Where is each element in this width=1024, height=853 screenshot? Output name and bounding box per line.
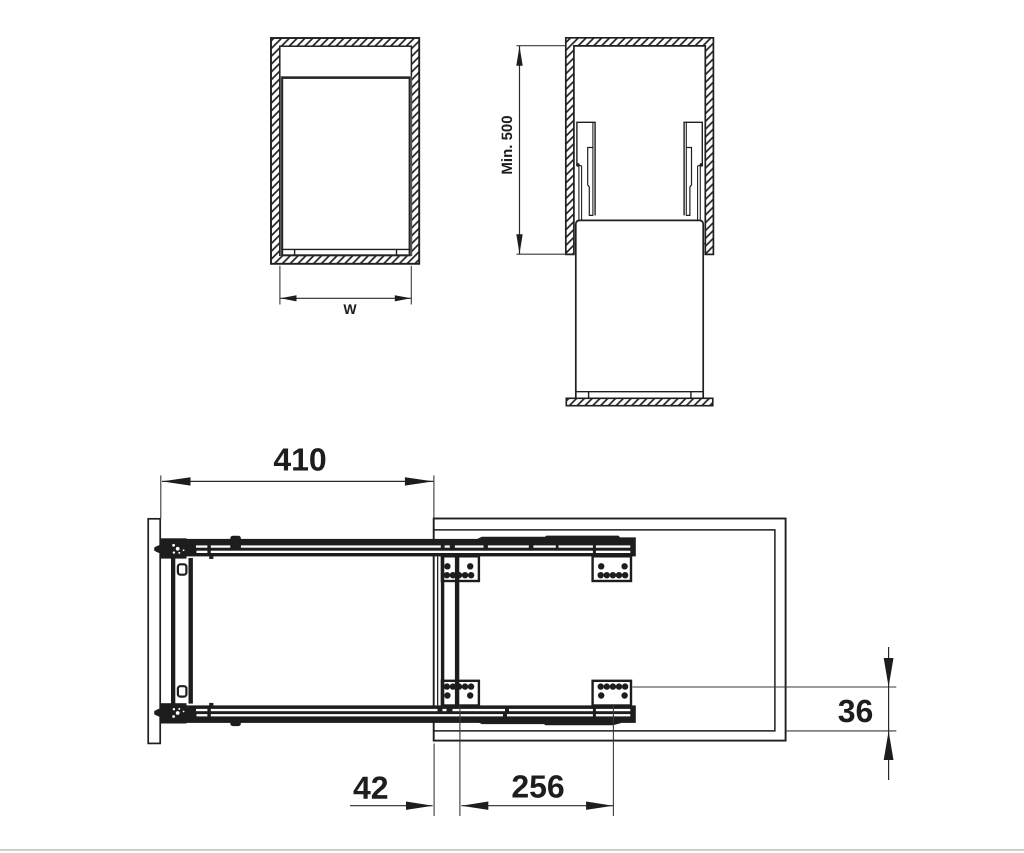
svg-text:W: W <box>343 301 357 317</box>
svg-text:256: 256 <box>511 768 564 804</box>
svg-text:Min. 500: Min. 500 <box>499 115 516 174</box>
svg-text:410: 410 <box>273 441 326 477</box>
svg-text:42: 42 <box>353 770 389 806</box>
svg-text:36: 36 <box>838 693 874 729</box>
